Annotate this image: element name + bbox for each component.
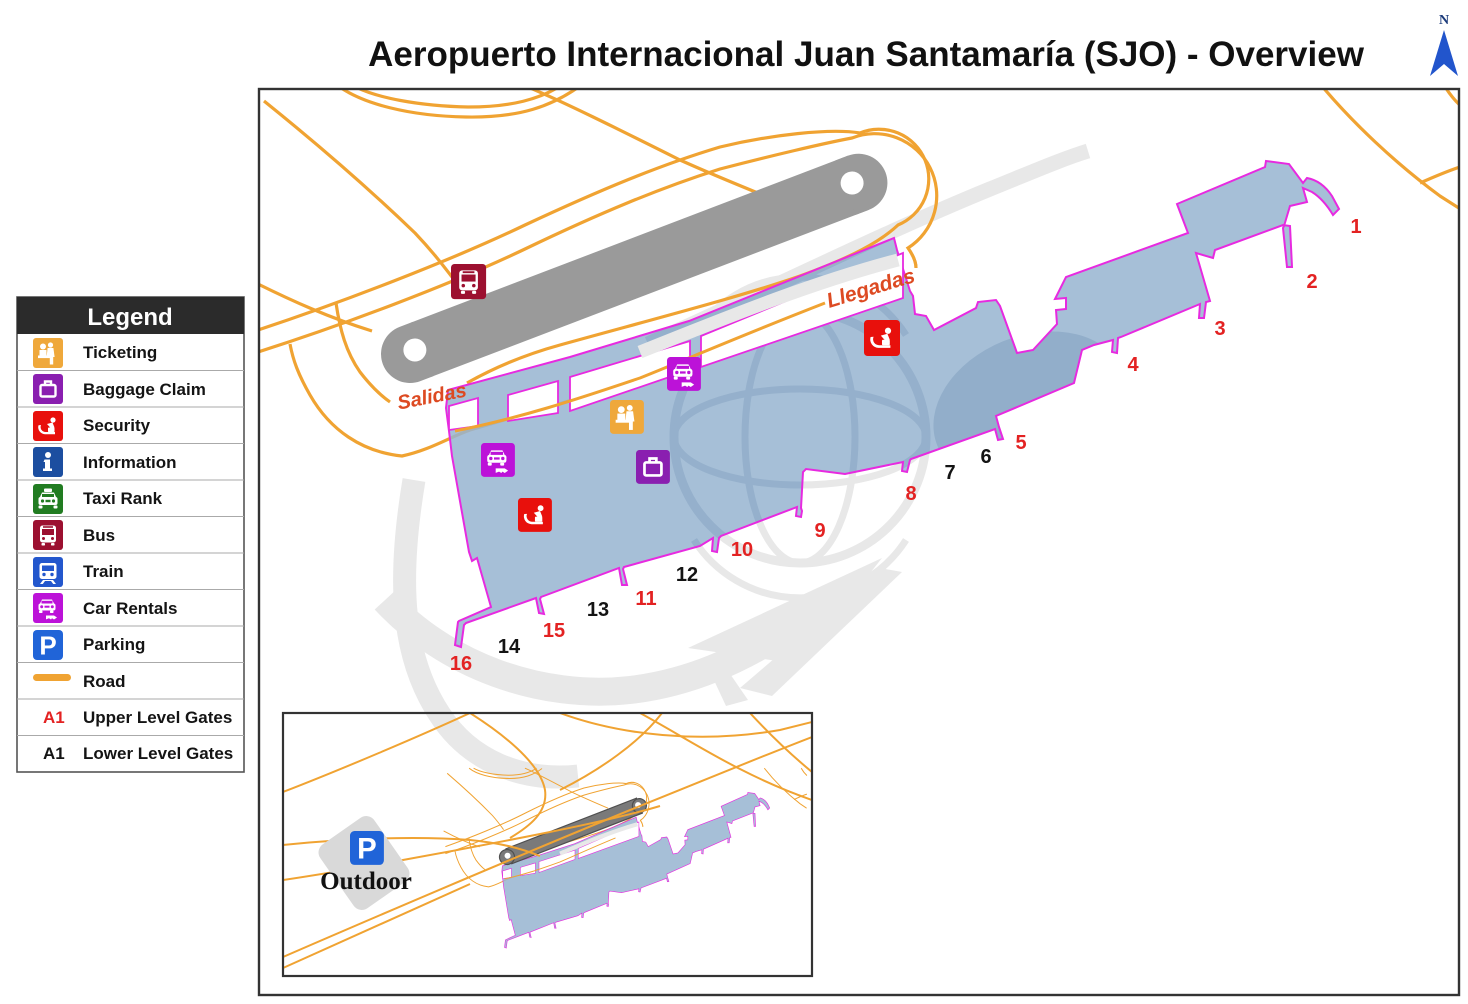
svg-text:1: 1 <box>1350 216 1361 238</box>
svg-text:13: 13 <box>587 599 609 621</box>
svg-text:2: 2 <box>1306 271 1317 293</box>
svg-text:5: 5 <box>1015 432 1026 454</box>
svg-text:11: 11 <box>635 588 656 610</box>
svg-text:Aeropuerto Internacional Juan: Aeropuerto Internacional Juan Santamaría… <box>368 35 1365 74</box>
svg-text:Ticketing: Ticketing <box>83 343 157 362</box>
svg-text:Road: Road <box>83 672 126 691</box>
svg-text:A1: A1 <box>43 744 65 763</box>
svg-text:Information: Information <box>83 453 177 472</box>
svg-text:7: 7 <box>944 462 955 484</box>
svg-text:A1: A1 <box>43 708 65 727</box>
svg-text:15: 15 <box>543 620 565 642</box>
svg-text:Baggage Claim: Baggage Claim <box>83 380 206 399</box>
svg-text:14: 14 <box>498 636 521 658</box>
svg-text:Parking: Parking <box>83 635 145 654</box>
svg-text:10: 10 <box>731 539 753 561</box>
svg-text:Car Rentals: Car Rentals <box>83 599 177 618</box>
svg-text:12: 12 <box>676 564 698 586</box>
svg-text:8: 8 <box>905 483 916 505</box>
svg-text:Legend: Legend <box>87 304 172 331</box>
svg-text:Train: Train <box>83 562 124 581</box>
svg-text:Lower Level Gates: Lower Level Gates <box>83 744 233 763</box>
svg-text:3: 3 <box>1214 318 1225 340</box>
svg-text:Outdoor: Outdoor <box>320 868 412 895</box>
svg-text:N: N <box>1439 13 1449 28</box>
svg-text:4: 4 <box>1127 354 1139 376</box>
svg-text:Bus: Bus <box>83 526 115 545</box>
svg-text:Security: Security <box>83 416 151 435</box>
svg-text:9: 9 <box>814 520 825 542</box>
svg-text:6: 6 <box>980 446 991 468</box>
svg-text:Upper Level Gates: Upper Level Gates <box>83 708 232 727</box>
svg-text:Taxi Rank: Taxi Rank <box>83 489 163 508</box>
svg-text:16: 16 <box>450 653 472 675</box>
